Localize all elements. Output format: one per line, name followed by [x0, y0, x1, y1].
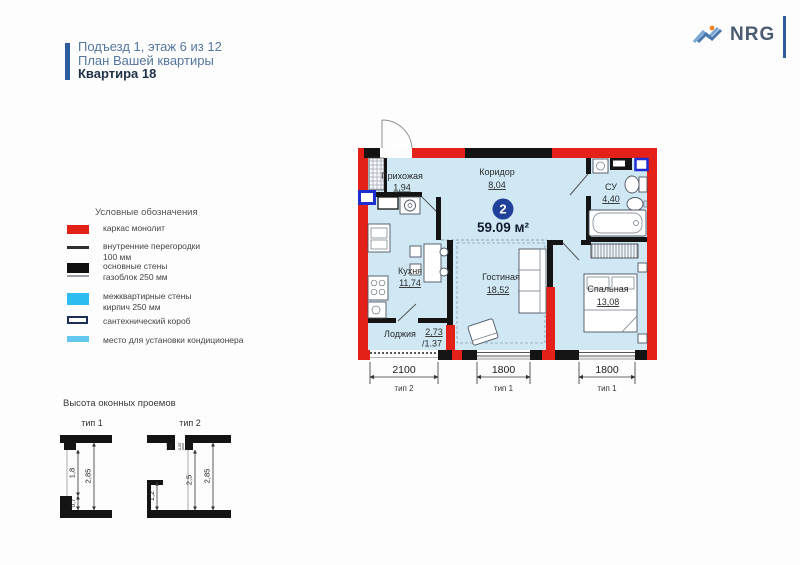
toilet-icon [625, 176, 647, 193]
svg-text:1,8: 1,8 [68, 468, 77, 478]
room-area-kitchen: 11,74 [399, 278, 421, 288]
legend-swatch-ac [67, 336, 89, 342]
room-area-bathroom: 4,40 [602, 194, 620, 204]
nrg-logo-icon [692, 24, 726, 46]
legend-swatch-plumbing-box [67, 316, 88, 324]
dimension-loggia-window: 2100 тип 2 [370, 362, 438, 393]
total-area-label: 59.09 м² [477, 220, 530, 235]
bathtub-icon [589, 210, 646, 236]
dim-type2-opening: 2,5 [185, 450, 196, 510]
room-label-bathroom: СУ [605, 182, 617, 192]
legend-item-label: сантехнический короб [103, 316, 191, 327]
window-type1-label: тип 1 [72, 418, 112, 428]
svg-text:2,5: 2,5 [185, 475, 194, 485]
logo-orange-dot [710, 26, 715, 31]
window-heights-title: Высота оконных проемов [63, 398, 176, 409]
dim-type1-opening: 1,8 [68, 450, 79, 496]
washing-machine-hall-icon [400, 197, 420, 214]
plumbing-box-bath-icon [636, 159, 648, 170]
legend-item-label: каркас монолит [103, 223, 165, 234]
dimension-width: 1800 [595, 364, 619, 376]
plumbing-box-left-icon [360, 192, 375, 204]
room-label-kitchen: Кухня [398, 266, 422, 276]
legend-swatch-partition-line [67, 246, 89, 249]
plumbing-box-hall-icon [378, 197, 398, 209]
svg-text:0,7: 0,7 [70, 498, 77, 507]
svg-text:0,35: 0,35 [177, 442, 182, 451]
dimension-living-window: 1800 тип 1 [477, 362, 530, 393]
header-divider [783, 16, 786, 58]
room-area-corridor: 8,04 [488, 180, 506, 190]
svg-text:2,85: 2,85 [84, 469, 93, 484]
page: Подъезд 1, этаж 6 из 12 План Вашей кварт… [0, 0, 800, 565]
header-accent-bar [65, 43, 70, 80]
room-area-living: 18,52 [487, 285, 510, 295]
header: Подъезд 1, этаж 6 из 12 План Вашей кварт… [78, 40, 222, 81]
legend-swatch-frame-red [67, 225, 89, 234]
room-label-loggia: Лоджия [384, 329, 416, 339]
nrg-logo-text: NRG [730, 24, 775, 46]
fridge-icon [368, 302, 386, 318]
window-type1-diagram: 1,8 2,85 0,7 [58, 430, 122, 530]
apartment-rooms-badge-number: 2 [499, 202, 506, 217]
room-label-bedroom: Спальная [587, 284, 628, 294]
room-area-loggia-reduced: /1.37 [422, 339, 442, 349]
room-area-bedroom: 13,08 [597, 297, 620, 307]
legend-swatch-cyan-wall [67, 293, 89, 305]
washing-machine-bath-icon [593, 159, 608, 173]
legend-swatch-black-wall [67, 263, 89, 277]
shelf-box-icon [610, 158, 632, 170]
nightstand-icon [638, 263, 647, 272]
dimension-type: тип 1 [597, 384, 617, 393]
room-label-hallway: Прихожая [381, 171, 423, 181]
window-type2-diagram: 0,35 0,35 1,2 2,5 2,85 [145, 430, 235, 530]
dim-type2-total: 2,85 [203, 443, 214, 510]
stove-icon [368, 276, 388, 300]
legend-title: Условные обозначения [95, 207, 198, 218]
dimension-type: тип 2 [394, 384, 414, 393]
header-line-apartment: Квартира 18 [78, 67, 222, 81]
room-label-corridor: Коридор [479, 167, 515, 177]
dimension-bedroom-window: 1800 тип 1 [579, 362, 635, 393]
room-area-hallway: 1,94 [393, 183, 411, 193]
dim-type1-total: 2,85 [84, 443, 95, 510]
dimension-width: 1800 [492, 364, 516, 376]
room-label-living: Гостиная [482, 272, 520, 282]
header-line-entrance-floor: Подъезд 1, этаж 6 из 12 [78, 40, 222, 54]
wardrobe-hatch [591, 244, 638, 258]
legend-item-label: основные стены газоблок 250 мм [103, 261, 168, 283]
floor-plan: Прихожая 1,94 Коридор 8,04 СУ 4,40 Кухня… [348, 100, 668, 400]
room-area-loggia: 2,73 [425, 327, 443, 337]
dimension-width: 2100 [392, 364, 416, 376]
bedroom-window-icon [579, 350, 635, 360]
svg-text:1,2: 1,2 [147, 491, 156, 501]
entrance-door-icon [382, 120, 412, 148]
legend-item-label: место для установки кондиционера [103, 335, 243, 346]
legend-item-label: внутренние перегородки 100 мм [103, 241, 200, 263]
sofa-icon [519, 249, 546, 313]
header-line-plan-title: План Вашей квартиры [78, 54, 222, 68]
nrg-logo: NRG [692, 24, 775, 46]
kitchen-sink-icon [368, 224, 390, 252]
loggia-glazing-icon [370, 350, 438, 360]
nightstand-icon [638, 334, 647, 343]
dimension-type: тип 1 [494, 384, 514, 393]
svg-text:2,85: 2,85 [203, 469, 212, 484]
legend-item-label: межквартирные стены кирпич 250 мм [103, 291, 191, 313]
window-type2-label: тип 2 [170, 418, 210, 428]
living-window-icon [477, 350, 530, 360]
svg-text:0,35: 0,35 [165, 442, 170, 451]
